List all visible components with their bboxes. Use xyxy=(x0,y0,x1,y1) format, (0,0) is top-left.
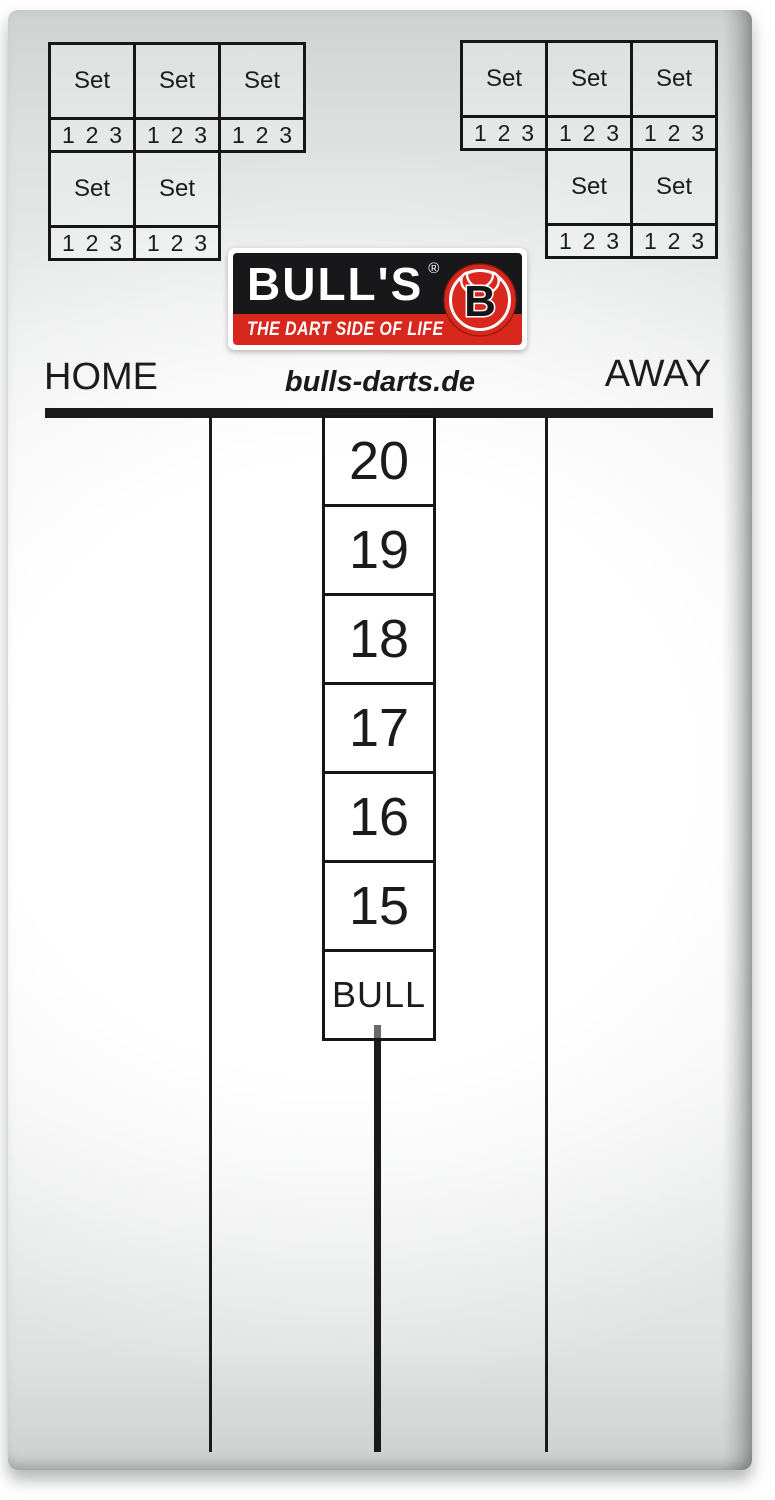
target-cell-15: 15 xyxy=(324,862,435,951)
leg-number: 3 xyxy=(521,120,534,147)
leg-number: 2 xyxy=(583,120,596,147)
leg-number: 3 xyxy=(691,120,704,147)
set-cell: Set xyxy=(547,150,632,225)
legs-cell: 123 xyxy=(220,119,305,152)
leg-number: 3 xyxy=(691,228,704,255)
leg-number: 1 xyxy=(147,230,160,257)
set-grid-left: Set Set Set 123 123 123 Set Set 123 123 xyxy=(48,42,306,261)
bulls-logo-inner: BULL'S ® THE DART SIDE OF LIFE B xyxy=(233,253,522,345)
leg-number: 2 xyxy=(256,122,269,149)
emblem-letter: B xyxy=(464,277,496,326)
score-target-column: 20 19 18 17 16 15 BULL xyxy=(322,415,436,1041)
legs-cell: 123 xyxy=(547,117,632,150)
legs-cell: 123 xyxy=(50,227,135,260)
target-cell-19: 19 xyxy=(324,506,435,595)
leg-number: 1 xyxy=(232,122,245,149)
website-label: bulls-darts.de xyxy=(8,366,752,399)
brand-tagline: THE DART SIDE OF LIFE xyxy=(247,319,444,341)
leg-number: 3 xyxy=(109,230,122,257)
set-cell: Set xyxy=(135,152,220,227)
leg-number: 2 xyxy=(86,230,99,257)
target-cell-16: 16 xyxy=(324,773,435,862)
bulls-logo: BULL'S ® THE DART SIDE OF LIFE B xyxy=(228,248,527,350)
target-cell-20: 20 xyxy=(324,417,435,506)
leg-number: 3 xyxy=(279,122,292,149)
legs-cell: 123 xyxy=(135,119,220,152)
brand-wordmark: BULL'S xyxy=(247,261,423,307)
leg-number: 3 xyxy=(606,120,619,147)
legs-cell: 123 xyxy=(462,117,547,150)
leg-number: 1 xyxy=(474,120,487,147)
empty-cell xyxy=(462,150,547,225)
leg-number: 2 xyxy=(498,120,511,147)
legs-cell: 123 xyxy=(632,117,717,150)
target-cell-18: 18 xyxy=(324,595,435,684)
legs-cell: 123 xyxy=(632,225,717,258)
leg-number: 2 xyxy=(668,228,681,255)
set-cell: Set xyxy=(547,42,632,117)
leg-number: 1 xyxy=(62,122,75,149)
set-cell: Set xyxy=(632,150,717,225)
set-cell: Set xyxy=(50,152,135,227)
legs-cell: 123 xyxy=(135,227,220,260)
set-cell: Set xyxy=(220,44,305,119)
set-cell: Set xyxy=(462,42,547,117)
leg-number: 3 xyxy=(194,122,207,149)
set-grid-right: Set Set Set 123 123 123 Set Set 123 123 xyxy=(460,40,718,259)
set-cell: Set xyxy=(50,44,135,119)
scoreboard-photo: Set Set Set 123 123 123 Set Set 123 123 … xyxy=(0,0,775,1500)
leg-number: 2 xyxy=(171,122,184,149)
center-column-line xyxy=(374,1025,381,1452)
leg-number: 1 xyxy=(644,120,657,147)
leg-number: 3 xyxy=(194,230,207,257)
leg-number: 1 xyxy=(559,120,572,147)
leg-number: 1 xyxy=(62,230,75,257)
leg-number: 2 xyxy=(583,228,596,255)
leg-number: 1 xyxy=(644,228,657,255)
leg-number: 2 xyxy=(668,120,681,147)
empty-cell xyxy=(220,152,305,227)
bull-head-emblem-icon: B xyxy=(443,263,517,337)
leg-number: 3 xyxy=(606,228,619,255)
set-cell: Set xyxy=(632,42,717,117)
away-column-line xyxy=(545,417,548,1452)
target-cell-17: 17 xyxy=(324,684,435,773)
target-cell-bull: BULL xyxy=(324,951,435,1040)
leg-number: 1 xyxy=(147,122,160,149)
leg-number: 3 xyxy=(109,122,122,149)
leg-number: 1 xyxy=(559,228,572,255)
leg-number: 2 xyxy=(86,122,99,149)
home-column-line xyxy=(209,417,212,1452)
legs-cell: 123 xyxy=(50,119,135,152)
leg-number: 2 xyxy=(171,230,184,257)
registered-trademark-icon: ® xyxy=(428,260,439,277)
set-cell: Set xyxy=(135,44,220,119)
legs-cell: 123 xyxy=(547,225,632,258)
